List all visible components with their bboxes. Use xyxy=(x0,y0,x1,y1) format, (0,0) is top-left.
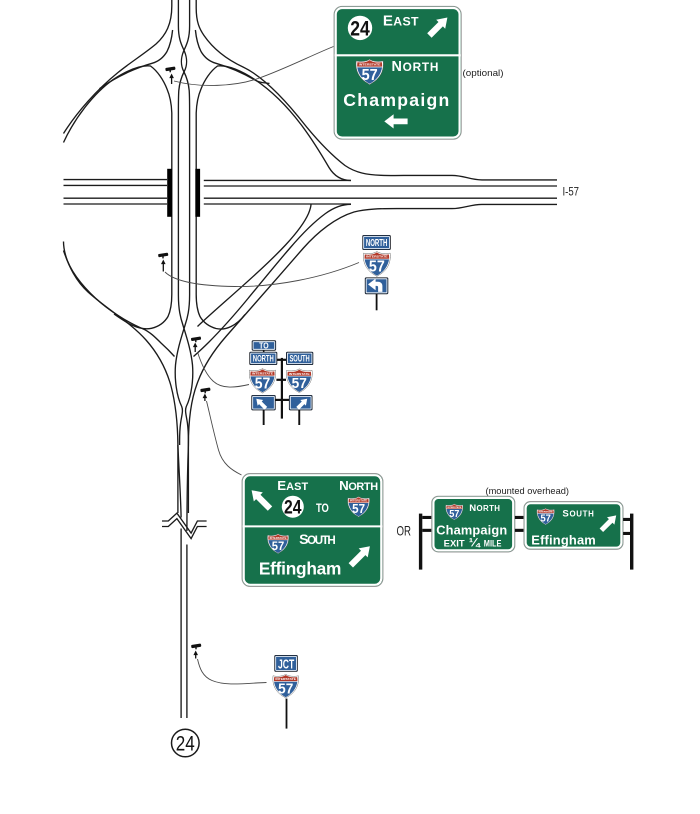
svg-text:JCT: JCT xyxy=(278,657,294,672)
svg-text:SOUTH: SOUTH xyxy=(299,532,335,548)
svg-text:NORTH: NORTH xyxy=(392,59,440,75)
svg-text:MILE: MILE xyxy=(484,538,502,548)
svg-text:24: 24 xyxy=(284,496,302,518)
svg-text:24: 24 xyxy=(176,732,195,756)
svg-text:¼: ¼ xyxy=(469,538,482,550)
svg-text:OR: OR xyxy=(397,524,412,539)
svg-text:(optional): (optional) xyxy=(463,67,504,78)
svg-text:24: 24 xyxy=(350,16,370,40)
svg-text:EXIT: EXIT xyxy=(444,538,465,548)
svg-text:I-57: I-57 xyxy=(563,185,580,199)
svg-text:(mounted overhead): (mounted overhead) xyxy=(486,485,570,496)
svg-text:SOUTH: SOUTH xyxy=(289,354,310,364)
svg-text:Champaign: Champaign xyxy=(436,522,507,537)
svg-text:Champaign: Champaign xyxy=(343,90,450,110)
svg-text:NORTH: NORTH xyxy=(339,478,378,493)
svg-text:Effingham: Effingham xyxy=(259,559,341,579)
svg-text:Effingham: Effingham xyxy=(531,533,596,548)
svg-text:EAST: EAST xyxy=(277,478,308,493)
svg-text:TO: TO xyxy=(259,341,269,350)
svg-text:NORTH: NORTH xyxy=(253,354,274,364)
svg-text:TO: TO xyxy=(316,501,329,515)
svg-text:EAST: EAST xyxy=(383,12,419,29)
svg-text:NORTH: NORTH xyxy=(366,238,388,249)
svg-text:NORTH: NORTH xyxy=(469,503,500,514)
svg-text:SOUTH: SOUTH xyxy=(562,508,594,519)
